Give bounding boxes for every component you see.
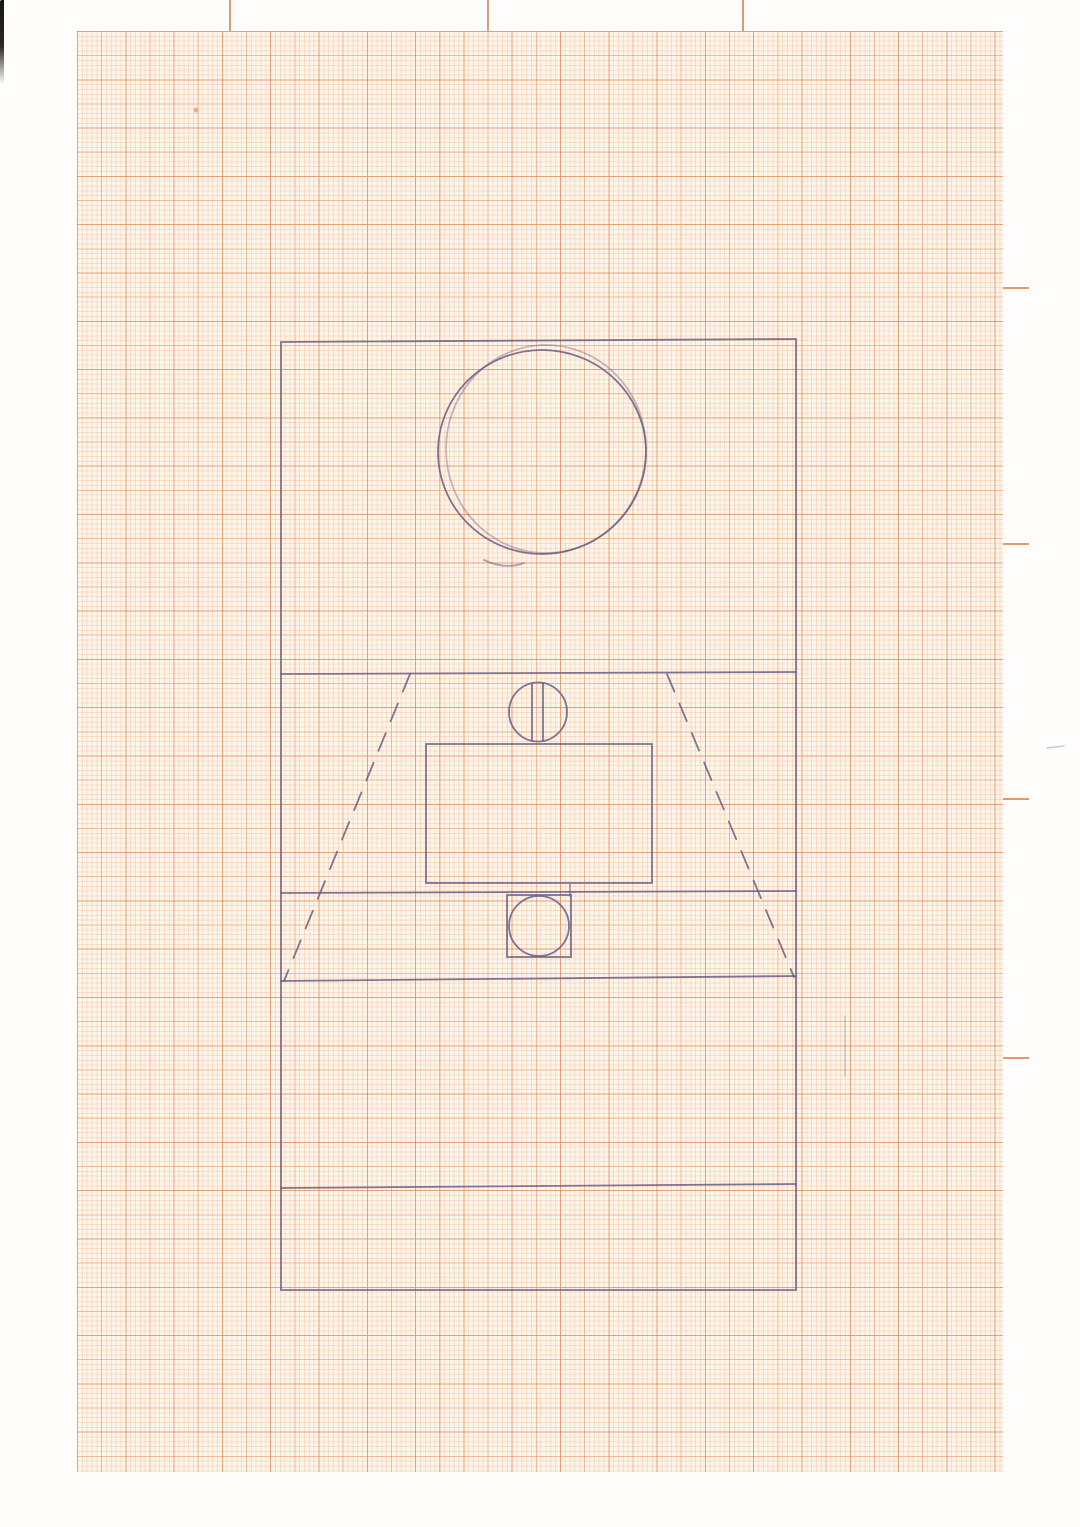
horizontal-divider-2 — [281, 891, 796, 893]
horizontal-divider-3 — [281, 976, 796, 981]
scanned-page — [0, 0, 1080, 1527]
inner-rectangle — [426, 744, 652, 883]
small-square — [507, 895, 571, 957]
dashed-diagonal-left — [284, 674, 410, 981]
horizontal-divider-1 — [281, 672, 796, 674]
large-circle-tail — [484, 560, 524, 566]
dashed-diagonal-right — [667, 674, 794, 977]
horizontal-divider-4 — [281, 1184, 796, 1188]
ink-sketch-drawing — [0, 0, 1080, 1527]
paper-speck — [194, 108, 197, 111]
slotted-circle — [509, 683, 567, 742]
outer-rectangle — [281, 339, 796, 1290]
pencil-dash-right-margin — [1047, 746, 1064, 748]
small-square-circle — [509, 896, 569, 956]
large-circle-overstroke — [446, 345, 646, 553]
